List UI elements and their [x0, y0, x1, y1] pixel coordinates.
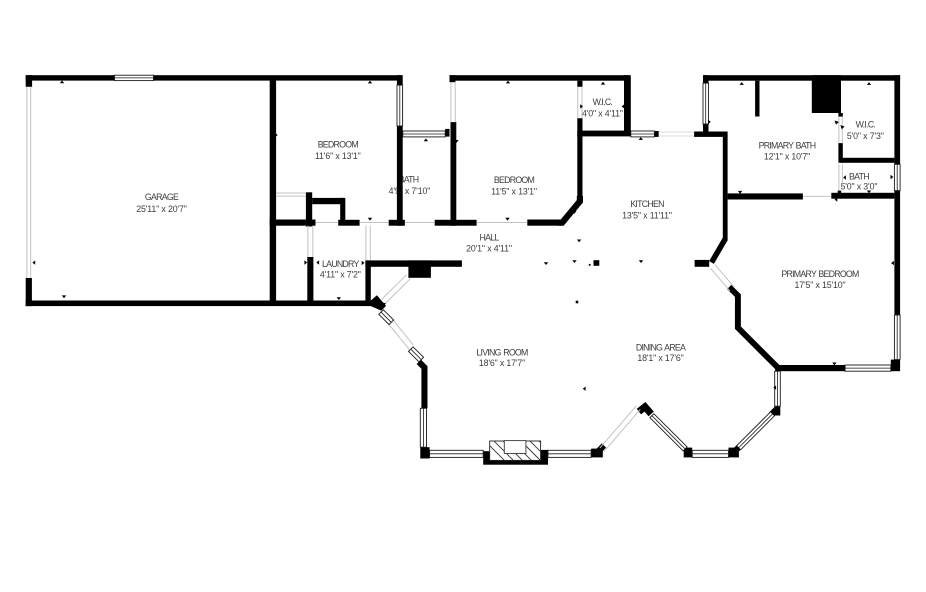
- svg-text:BEDROOM: BEDROOM: [494, 175, 535, 185]
- svg-text:W.I.C.: W.I.C.: [593, 97, 613, 107]
- svg-text:20'1" x 4'11": 20'1" x 4'11": [466, 244, 512, 254]
- svg-text:GARAGE: GARAGE: [145, 192, 179, 202]
- svg-text:PRIMARY BEDROOM: PRIMARY BEDROOM: [781, 269, 859, 279]
- svg-text:5'0" x 7'3": 5'0" x 7'3": [847, 131, 884, 141]
- svg-text:18'6" x 17'7": 18'6" x 17'7": [479, 358, 525, 368]
- svg-text:4'9" x 7'10": 4'9" x 7'10": [389, 186, 431, 196]
- svg-text:4'11" x 7'2": 4'11" x 7'2": [320, 270, 361, 280]
- svg-text:13'5" x 11'11": 13'5" x 11'11": [622, 210, 672, 220]
- svg-text:BATH: BATH: [849, 171, 869, 181]
- svg-text:LIVING ROOM: LIVING ROOM: [476, 348, 528, 358]
- svg-text:BEDROOM: BEDROOM: [318, 139, 359, 149]
- svg-text:5'0" x 3'0": 5'0" x 3'0": [840, 182, 877, 192]
- svg-text:17'5" x 15'10": 17'5" x 15'10": [794, 280, 845, 290]
- svg-text:12'1" x 10'7": 12'1" x 10'7": [764, 152, 810, 162]
- svg-text:11'5" x 13'1": 11'5" x 13'1": [491, 186, 537, 196]
- svg-text:18'1" x 17'6": 18'1" x 17'6": [637, 353, 683, 363]
- svg-text:HALL: HALL: [479, 233, 499, 243]
- svg-text:W.I.C.: W.I.C.: [856, 120, 876, 130]
- svg-text:4'0" x 4'11": 4'0" x 4'11": [582, 108, 623, 118]
- svg-text:DINING AREA: DINING AREA: [636, 343, 686, 353]
- svg-text:11'6" x 13'1": 11'6" x 13'1": [315, 151, 361, 161]
- svg-text:LAUNDRY: LAUNDRY: [322, 259, 360, 269]
- svg-text:PRIMARY BATH: PRIMARY BATH: [759, 141, 816, 151]
- svg-text:KITCHEN: KITCHEN: [630, 199, 664, 209]
- svg-text:25'11" x 20'7": 25'11" x 20'7": [136, 204, 186, 214]
